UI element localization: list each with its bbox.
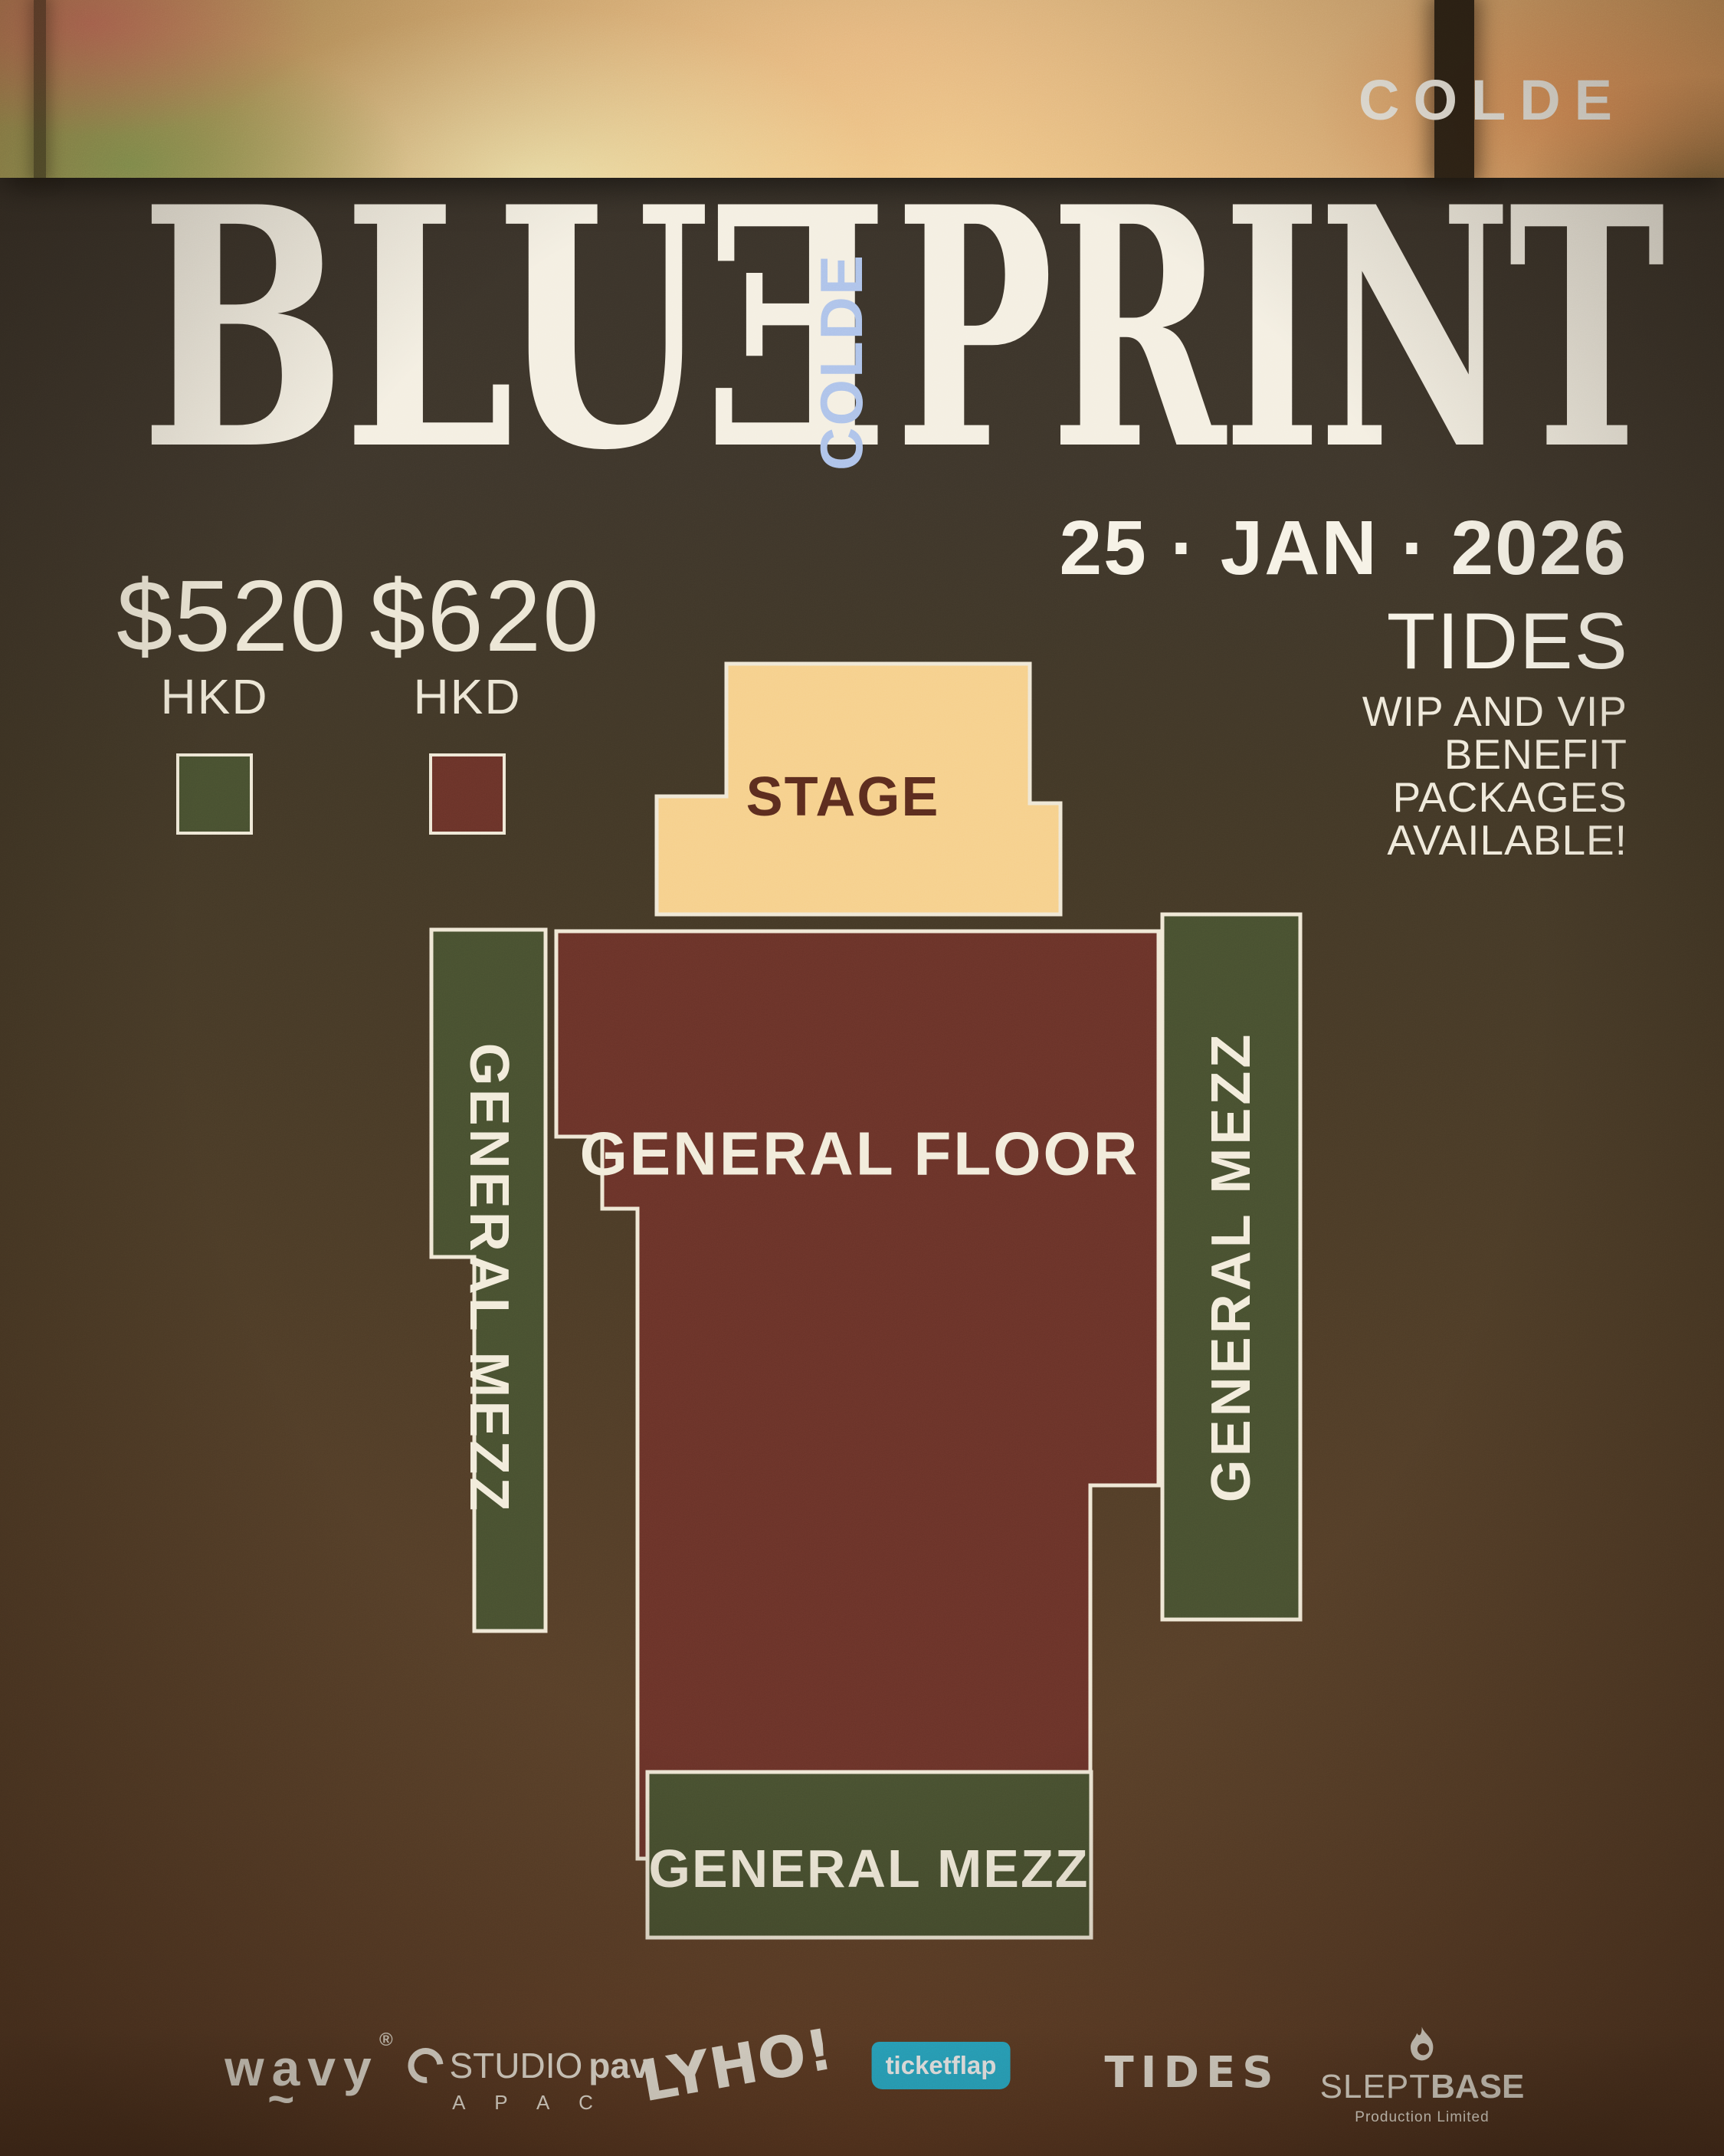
venue-seating-map: STAGE GENERAL FLOOR GENERAL MEZZ GENERAL… (0, 0, 1724, 2156)
general-mezz-right-label: GENERAL MEZZ (1201, 1032, 1262, 1503)
general-floor-area (556, 931, 1159, 1859)
stage-label: STAGE (746, 766, 940, 828)
general-mezz-left-label: GENERAL MEZZ (458, 1043, 519, 1514)
event-poster: COLDE BLUE COLDE PRINT 25 · JAN · 2026 T… (0, 0, 1724, 2156)
general-floor-label: GENERAL FLOOR (580, 1120, 1140, 1188)
general-mezz-bottom-label: GENERAL MEZZ (649, 1839, 1090, 1898)
